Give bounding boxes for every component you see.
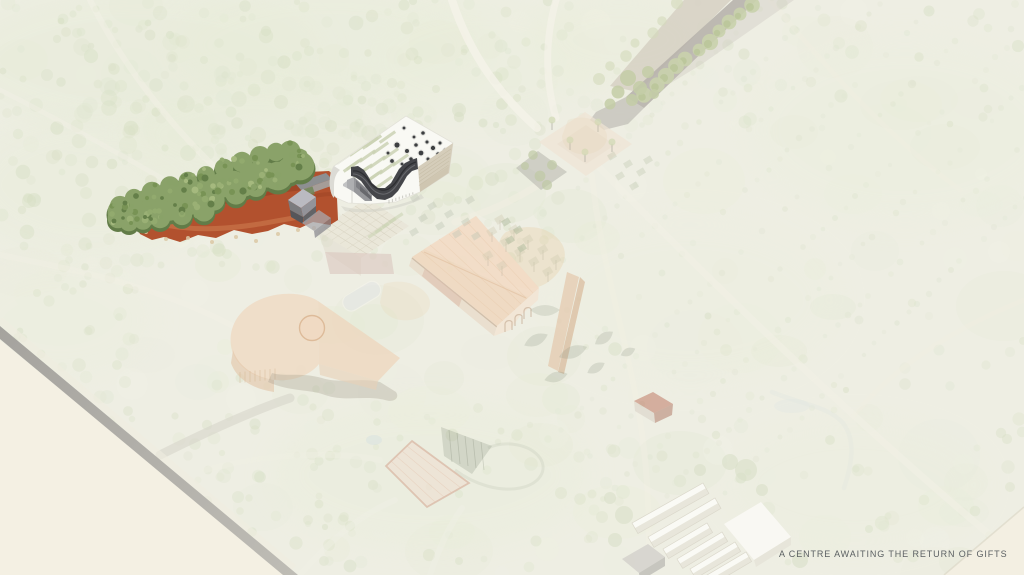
svg-text:A CENTRE AWAITING THE RETURN O: A CENTRE AWAITING THE RETURN OF GIFTS xyxy=(779,549,1007,559)
